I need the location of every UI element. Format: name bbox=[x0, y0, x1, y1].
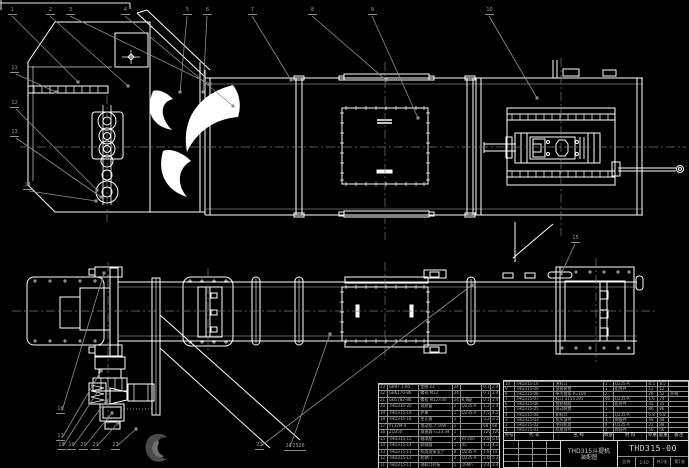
sheet-frame bbox=[0, 0, 130, 10]
footer-cell: 第1张 bbox=[670, 457, 688, 467]
casing bbox=[205, 74, 643, 217]
top-view bbox=[28, 10, 684, 217]
projection-lines bbox=[513, 222, 553, 262]
product-title: THD315斗提机 bbox=[568, 448, 610, 455]
footer-cell: 比例 bbox=[618, 457, 635, 467]
bom-table-left: 23 GB97.1-85 垫圈 12 24 0.1 2.4 22 GB6170-… bbox=[378, 383, 500, 468]
drawing-number-box: THD315-00 比例 1:10 共1张 第1张 bbox=[617, 440, 689, 468]
cad-sheet: 1234567891011121314151617181920212223242… bbox=[0, 0, 689, 468]
bom-row: 11 THD315-11 进料口衬板 1 16Mn 3.4 3.4 bbox=[379, 462, 499, 468]
drawing-number: THD315-00 bbox=[618, 441, 688, 456]
footer-cell: 共1张 bbox=[653, 457, 671, 467]
buckets bbox=[150, 85, 240, 197]
footer-cell: 1:10 bbox=[635, 457, 653, 467]
datum-symbol bbox=[122, 50, 140, 64]
takeup-section bbox=[476, 60, 684, 215]
title-footer: 比例 1:10 共1张 第1张 bbox=[618, 456, 688, 467]
drawing-title: THD315斗提机 装配图 bbox=[560, 440, 618, 468]
cursor-blob bbox=[146, 434, 167, 462]
signature-grid bbox=[503, 440, 561, 468]
drawing-type: 装配图 bbox=[581, 455, 598, 461]
drive-unit bbox=[89, 357, 154, 429]
bom-table-right: 10 THD315-10 进料斗 1 Q235-A 8.5 8.5 9 THD3… bbox=[503, 380, 689, 433]
